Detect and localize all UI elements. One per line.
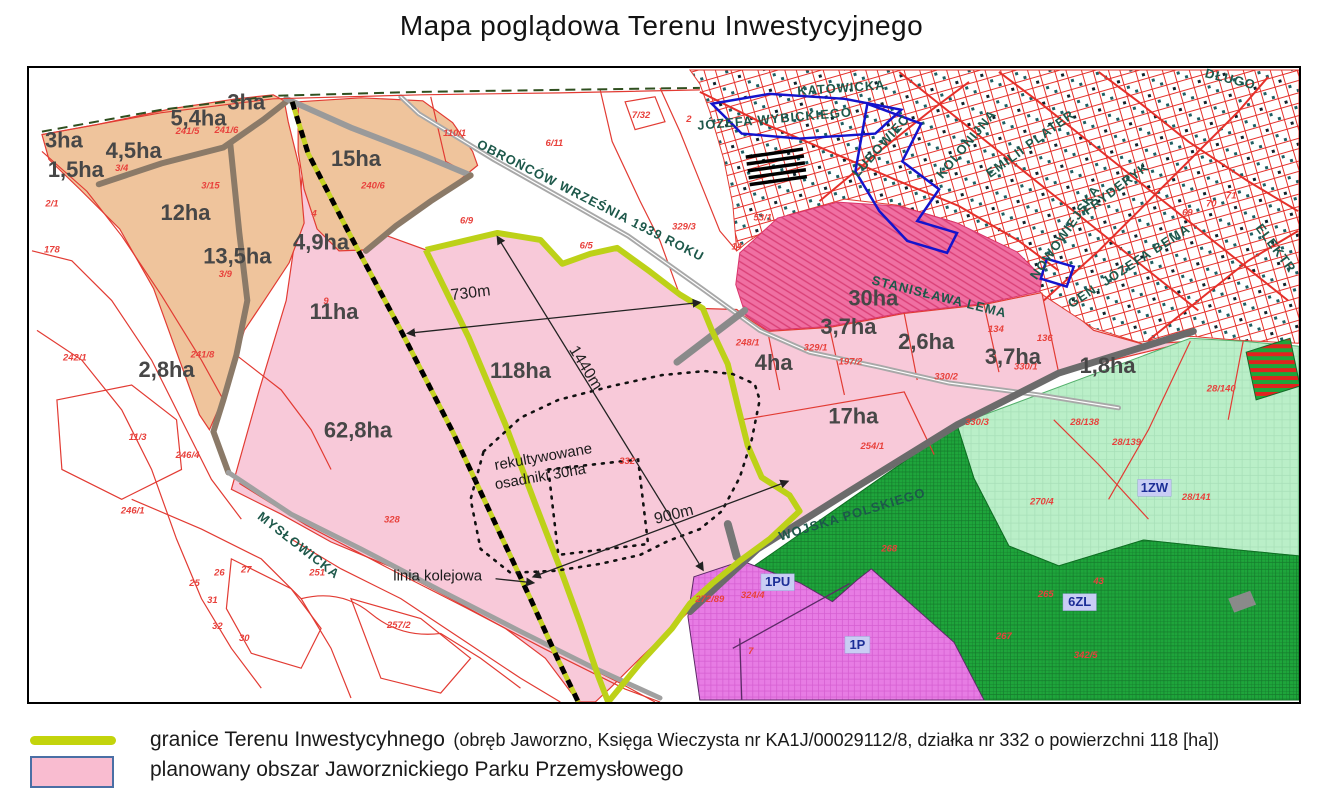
parcel-label: 32: [212, 621, 223, 632]
parcel-label: 7/32: [632, 110, 651, 121]
parcel-label: 267: [995, 631, 1013, 642]
parcel-label: 30: [239, 633, 250, 644]
parcel-label: 257/2: [386, 620, 411, 631]
parcel-label: 248/1: [735, 338, 760, 349]
area-label: 3ha: [45, 127, 84, 152]
page-title: Mapa poglądowa Terenu Inwestycyjnego: [0, 10, 1323, 42]
area-label: 3ha: [227, 90, 266, 115]
parcel-label: 242/1: [62, 353, 87, 364]
area-label: 12ha: [161, 200, 212, 225]
parcel-label: 268: [880, 543, 898, 554]
parcel-label: 26: [213, 567, 225, 578]
parcel-label: 2: [685, 114, 692, 125]
parcel-label: 240/6: [360, 181, 385, 192]
parcel-label: 332: [619, 456, 636, 467]
area-label: 2,6ha: [898, 329, 955, 354]
parcel-label: 197/2: [839, 357, 863, 368]
parcel-label: 254/1: [860, 441, 885, 452]
parcel-label: 71: [1226, 191, 1237, 202]
area-label: 17ha: [828, 404, 879, 429]
map-frame: 241/5241/63/43/152/11783/9240/6110/16/11…: [27, 66, 1301, 704]
parcel-label: 178: [44, 244, 61, 255]
parcel-label: 3/15: [201, 181, 220, 192]
parcel-label: 69: [1182, 208, 1193, 219]
parcel-label: 14: [732, 241, 743, 252]
parcel-label: 330/2: [934, 372, 958, 383]
parcel-label: 6/5: [580, 240, 594, 251]
parcel-label: 246/4: [175, 450, 200, 461]
area-label: 4ha: [755, 350, 794, 375]
legend-park-label: planowany obszar Jaworznickiego Parku Pr…: [150, 758, 683, 781]
legend-granice-detail: (obręb Jaworzno, Księga Wieczysta nr KA1…: [453, 730, 1219, 750]
zone-label: 6ZL: [1068, 594, 1091, 609]
parcel-label: 265: [1037, 589, 1055, 600]
zone-label: 1ZW: [1141, 480, 1169, 495]
legend-granice-label: granice Terenu Inwestycyhnego: [150, 728, 445, 751]
area-label: 4,9ha: [293, 230, 350, 255]
parcel-label: 25: [188, 578, 200, 589]
parcel-label: 4: [310, 209, 317, 220]
parcel-label: 3/9: [219, 269, 233, 280]
parcel-label: 3/4: [115, 163, 129, 174]
area-label: 1,8ha: [1080, 353, 1137, 378]
parcel-label: 329/1: [804, 343, 828, 354]
parcel-label: 330/3: [965, 417, 989, 428]
parcel-label: 342/5: [1074, 650, 1098, 661]
area-label: 11ha: [310, 299, 360, 324]
area-label: 15ha: [331, 146, 382, 171]
planned-park-swatch: [30, 756, 114, 788]
parcel-label: 28/138: [1069, 417, 1100, 428]
parcel-label: 27: [240, 564, 252, 575]
area-label: 4,5ha: [106, 138, 163, 163]
parcel-label: 328: [384, 515, 401, 526]
area-label: 3,7ha: [820, 314, 877, 339]
parcel-label: 11/3: [129, 432, 147, 443]
overview-map: 241/5241/63/43/152/11783/9240/6110/16/11…: [29, 68, 1299, 702]
area-label: 1,5ha: [48, 157, 105, 182]
parcel-label: 324/4: [741, 590, 765, 601]
parcel-label: 110/1: [443, 128, 466, 139]
parcel-label: 136: [1037, 333, 1054, 344]
parcel-label: 134: [988, 324, 1005, 335]
parcel-label: 329/3: [672, 222, 696, 233]
parcel-label: 53/1: [753, 213, 771, 224]
area-label: 62,8ha: [324, 418, 393, 443]
parcel-label: 28/139: [1111, 437, 1142, 448]
parcel-label: 70: [1206, 199, 1217, 210]
parcel-label: 7: [748, 646, 754, 657]
parcel-label: 28/140: [1206, 383, 1237, 394]
parcel-label: 31: [207, 595, 218, 606]
zone-label: 1P: [849, 637, 865, 652]
area-label: 118ha: [490, 358, 552, 383]
parcel-label: 28/141: [1181, 492, 1211, 503]
area-label: 5,4ha: [170, 105, 227, 130]
area-label: 13,5ha: [203, 244, 272, 269]
map-annotation: linia kolejowa: [393, 568, 483, 585]
page: Mapa poglądowa Terenu Inwestycyjnego: [0, 0, 1323, 804]
investment-boundary-swatch: [30, 736, 116, 745]
parcel-label: 272/89: [694, 594, 725, 605]
area-label: 2,8ha: [139, 357, 196, 382]
parcel-label: 6/11: [545, 138, 563, 149]
parcel-label: 246/1: [120, 506, 145, 517]
area-label: 3,7ha: [985, 344, 1042, 369]
parcel-label: 270/4: [1029, 497, 1054, 508]
parcel-label: 2/1: [44, 199, 58, 210]
zone-label: 1PU: [765, 574, 790, 589]
parcel-label: 6/9: [460, 216, 474, 227]
parcel-label: 43: [1092, 576, 1104, 587]
